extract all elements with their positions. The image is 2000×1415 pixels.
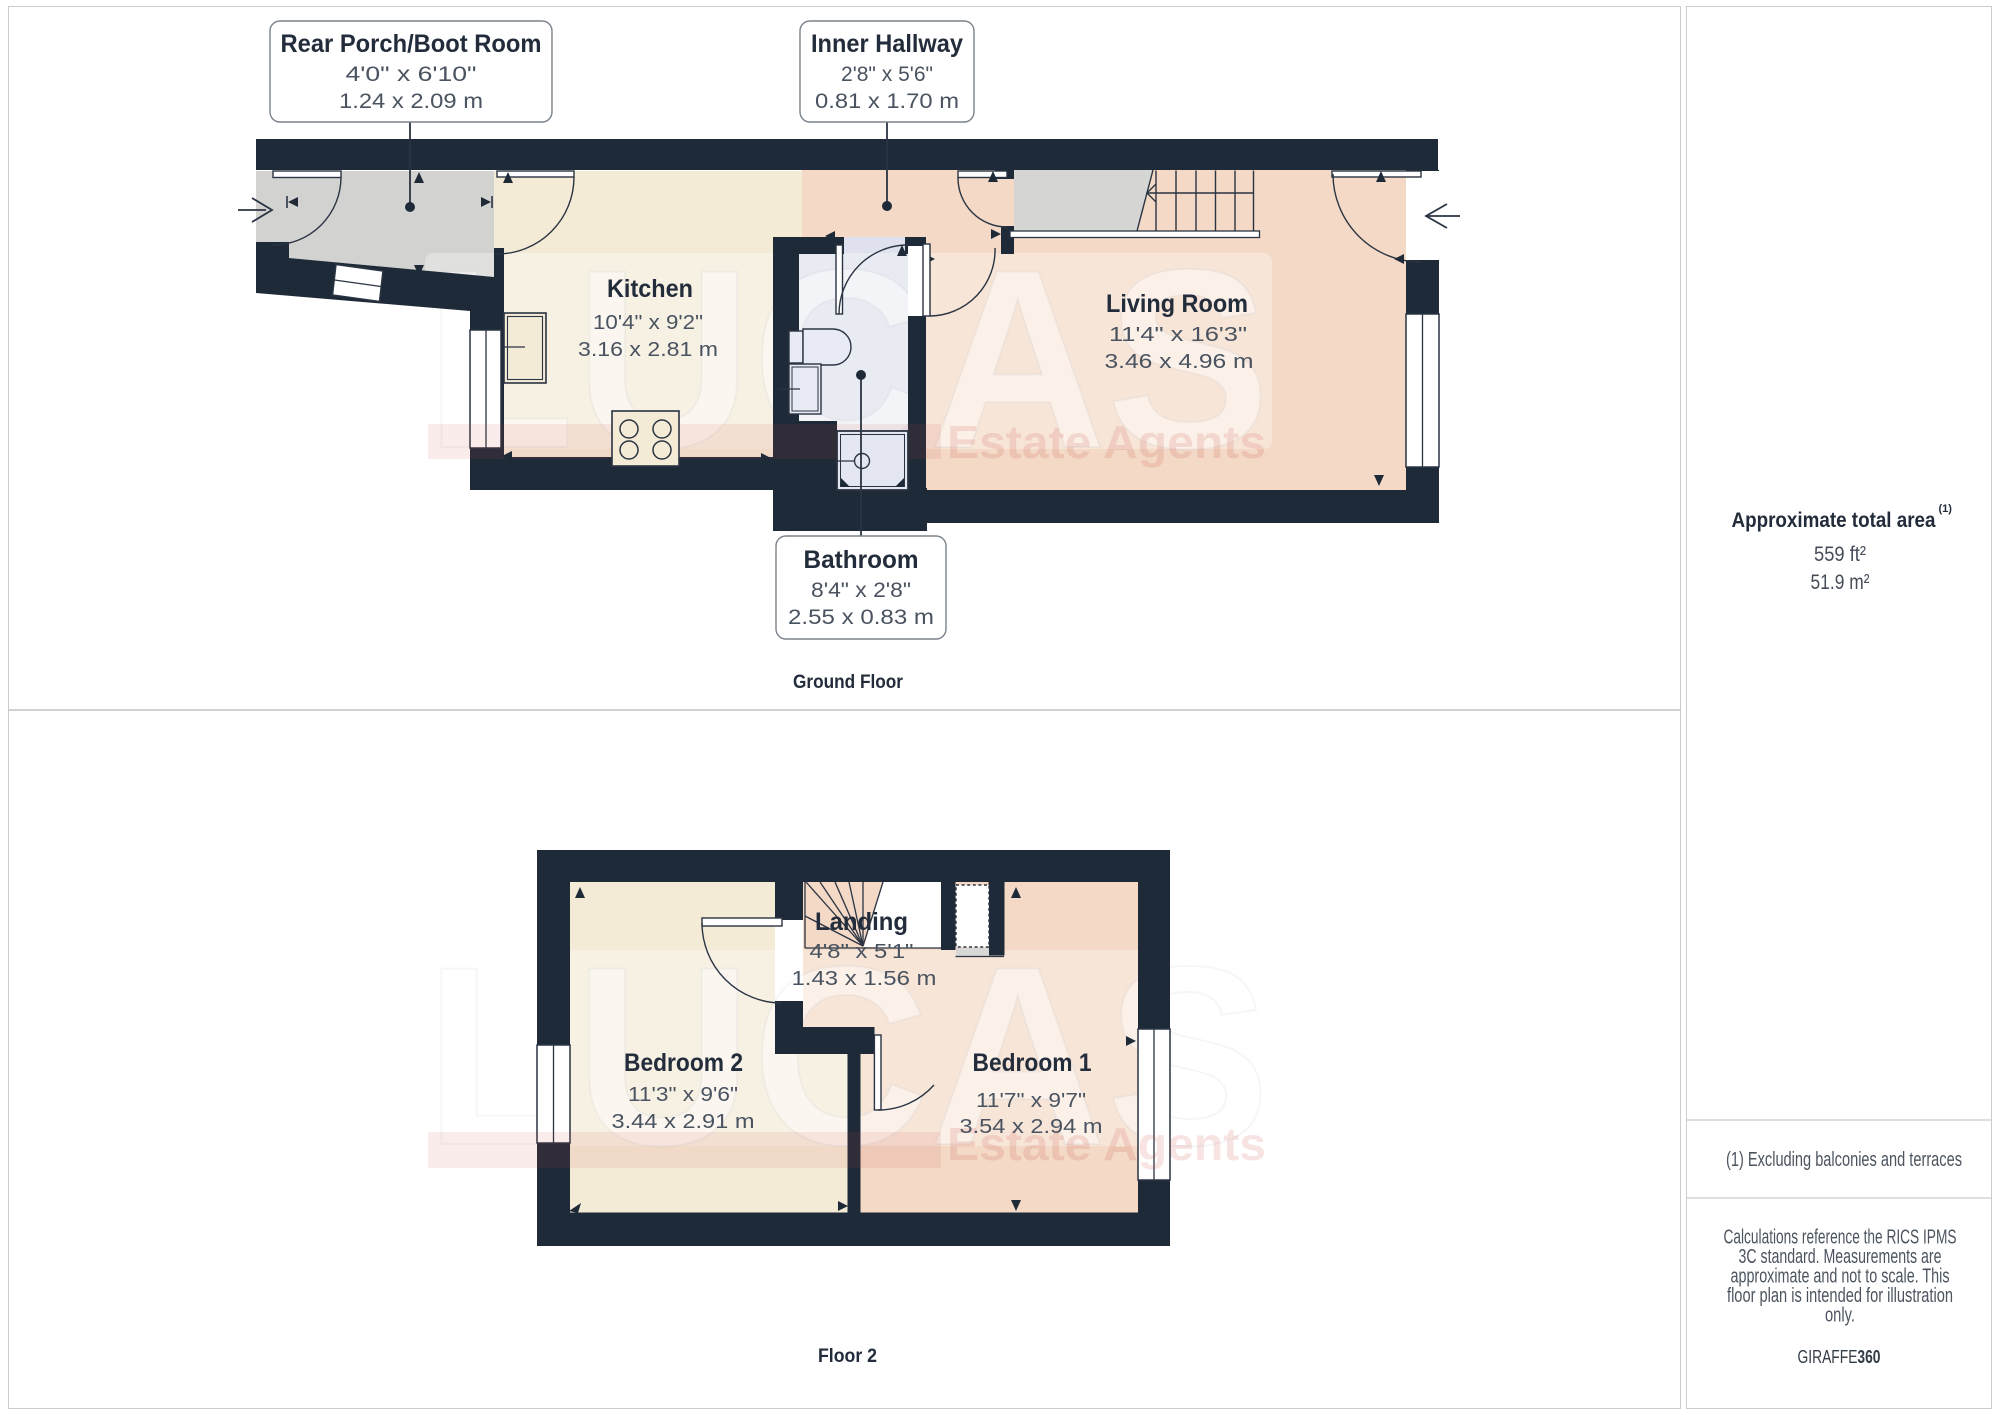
svg-text:0.81 x 1.70 m: 0.81 x 1.70 m (815, 90, 959, 113)
svg-text:Ground Floor: Ground Floor (793, 672, 904, 693)
svg-text:1.24 x 2.09 m: 1.24 x 2.09 m (339, 90, 483, 113)
svg-text:11'4" x 16'3": 11'4" x 16'3" (1109, 324, 1247, 346)
svg-text:2'8" x 5'6": 2'8" x 5'6" (841, 63, 933, 86)
svg-text:3.54 x 2.94 m: 3.54 x 2.94 m (960, 1116, 1103, 1138)
svg-text:Approximate total area: Approximate total area (1732, 508, 1937, 532)
svg-text:8'4" x 2'8": 8'4" x 2'8" (811, 579, 911, 602)
svg-text:559 ft²: 559 ft² (1814, 543, 1866, 566)
svg-text:Inner Hallway: Inner Hallway (811, 30, 963, 58)
svg-text:Rear Porch/Boot Room: Rear Porch/Boot Room (281, 30, 542, 58)
svg-text:3.44 x 2.91 m: 3.44 x 2.91 m (612, 1111, 755, 1133)
svg-text:only.: only. (1825, 1305, 1855, 1327)
svg-text:GIRAFFE360: GIRAFFE360 (1798, 1347, 1881, 1367)
svg-text:3.16 x 2.81 m: 3.16 x 2.81 m (578, 339, 718, 361)
svg-text:11'3" x 9'6": 11'3" x 9'6" (628, 1084, 738, 1106)
svg-text:11'7" x 9'7": 11'7" x 9'7" (976, 1090, 1086, 1112)
svg-text:Estate Agents: Estate Agents (947, 416, 1266, 468)
svg-text:(1) Excluding balconies and te: (1) Excluding balconies and terraces (1726, 1149, 1962, 1171)
svg-text:Living Room: Living Room (1106, 290, 1248, 318)
svg-text:(1): (1) (1939, 503, 1953, 515)
svg-text:10'4" x 9'2": 10'4" x 9'2" (593, 312, 703, 334)
svg-text:Landing: Landing (815, 908, 908, 936)
svg-text:Bedroom 2: Bedroom 2 (624, 1049, 743, 1077)
svg-text:4'0" x 6'10": 4'0" x 6'10" (346, 63, 477, 86)
svg-text:Floor 2: Floor 2 (818, 1346, 877, 1367)
svg-text:Bathroom: Bathroom (804, 546, 919, 574)
svg-text:51.9 m²: 51.9 m² (1811, 571, 1870, 594)
svg-text:Kitchen: Kitchen (607, 275, 693, 303)
svg-text:1.43 x 1.56 m: 1.43 x 1.56 m (792, 968, 937, 990)
svg-text:4'8" x 5'1": 4'8" x 5'1" (810, 941, 914, 963)
svg-text:3.46 x 4.96 m: 3.46 x 4.96 m (1105, 351, 1254, 373)
svg-text:2.55 x 0.83 m: 2.55 x 0.83 m (788, 606, 934, 629)
svg-text:Bedroom 1: Bedroom 1 (973, 1049, 1092, 1077)
